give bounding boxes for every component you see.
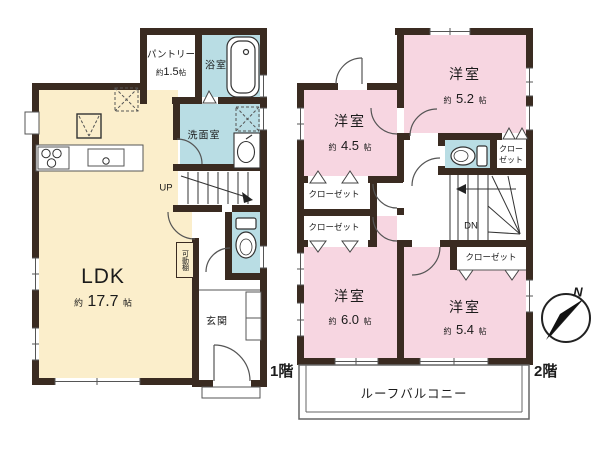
floor2-label: 2階 [534,360,557,381]
stairs-up-label: UP [159,184,172,195]
bedroom-nw-label: 洋室 [334,113,366,129]
wall [397,134,404,182]
wall [140,97,147,104]
wall [397,241,404,365]
window [526,106,533,130]
stairs-2f-arrow [456,184,466,194]
door-arc-nw-top [336,58,362,84]
ldk-floor [178,207,192,378]
window [297,108,304,140]
ldk-label: LDK [81,265,125,289]
shoe-cabinet-icon [246,318,261,340]
wall [368,240,377,247]
wall [225,212,232,280]
toilet2f-floor [445,140,490,168]
wall [173,164,260,171]
pantry-label: パントリー [147,51,195,62]
wall [370,176,377,247]
wall [528,133,533,140]
ldk-floor [36,90,178,378]
wall [438,168,533,175]
size-value: 17.7 [87,293,118,310]
window [420,358,488,365]
shoe-cabinet-icon [246,292,261,318]
size-prefix: 約 [329,317,337,326]
wall [297,176,308,183]
toilet1f-floor [232,212,260,273]
window [32,328,39,360]
wall [397,240,412,247]
entrance-label: 玄関 [206,316,228,328]
wall [140,28,267,35]
window [32,112,39,134]
size-value: 5.4 [456,322,474,337]
compass-icon [542,294,590,342]
wall [397,208,404,215]
stairs-2f [450,175,520,240]
door-arc-entrance [214,345,250,381]
stairs-1f-arrow [242,192,253,203]
wall [195,28,202,104]
size-prefix: 約 [329,143,337,152]
window [32,258,39,290]
entry-door-gap [213,380,251,387]
wall [397,133,410,140]
window [260,246,267,268]
bedroom-nw-floor [304,90,397,176]
wall [225,273,260,280]
bedroom-ne-size: 約 5.2 帖 [444,90,487,108]
window [260,75,267,97]
compass-north-label: N [573,285,582,300]
bedroom-ne-label: 洋室 [449,66,481,82]
closet-label: クローゼット [308,190,359,200]
wall [173,104,180,140]
wall [397,28,404,108]
stairs-down-label: DN [464,222,478,233]
window [260,108,267,130]
bedroom-se-size: 約 5.4 帖 [444,321,487,339]
size-unit: 帖 [179,68,187,77]
washroom-label: 洗面室 [188,130,221,142]
wall [297,209,377,216]
porch [202,387,260,398]
bedroom-se-label: 洋室 [449,299,481,315]
size-value: 5.2 [456,91,474,106]
door-arc-toilet2f [412,158,440,186]
wall [32,83,147,90]
size-unit: 帖 [363,317,371,326]
window [297,303,304,336]
window [526,68,533,96]
closet-ne-label: ゼット [499,155,523,164]
ldk-size: 約 17.7 帖 [74,293,132,311]
window [55,378,140,385]
stairs-1f [181,172,248,204]
floor1-label: 1階 [270,360,293,381]
size-prefix: 約 [444,327,452,336]
size-unit: 帖 [363,143,371,152]
window [430,28,470,35]
window [297,253,304,285]
bathroom-label: 浴室 [205,60,227,72]
wall [232,205,260,212]
size-prefix: 約 [156,68,164,77]
wall [450,247,457,270]
size-unit: 帖 [478,327,486,336]
wall [172,97,202,104]
bedroom-ne-floor [404,35,526,133]
wall [438,140,445,146]
balcony-label: ルーフバルコニー [360,387,467,401]
size-unit: 帖 [478,96,486,105]
closet-label: クローゼット [465,253,516,263]
bedroom-sw-size: 約 6.0 帖 [329,311,372,329]
movable-shelf: 可動棚 [176,242,194,278]
wall [438,133,502,140]
floor-plan: パントリー 約1.5帖 浴室 洗面室 UP 可動棚 玄関 LDK 約 17.7 … [0,0,600,449]
wall [297,83,338,90]
window [526,280,533,312]
size-prefix: 約 [444,96,452,105]
size-prefix: 約 [74,298,83,308]
closet-label: クローゼット [308,223,359,233]
bedroom-sw-floor [377,216,397,247]
size-unit: 帖 [123,298,132,308]
size-value: 6.0 [341,312,359,327]
size-value: 1.5 [163,66,178,78]
closet-ne-label: クロー [499,144,523,153]
wall [297,358,533,365]
window [335,358,378,365]
pantry-size: 約1.5帖 [156,62,186,80]
bedroom-nw-size: 約 4.5 帖 [329,137,372,155]
wall [297,240,308,247]
wall [440,240,533,247]
wall [173,205,222,212]
size-value: 4.5 [341,138,359,153]
movable-shelf-label: 可動棚 [182,250,189,271]
bedroom-sw-label: 洋室 [334,288,366,304]
